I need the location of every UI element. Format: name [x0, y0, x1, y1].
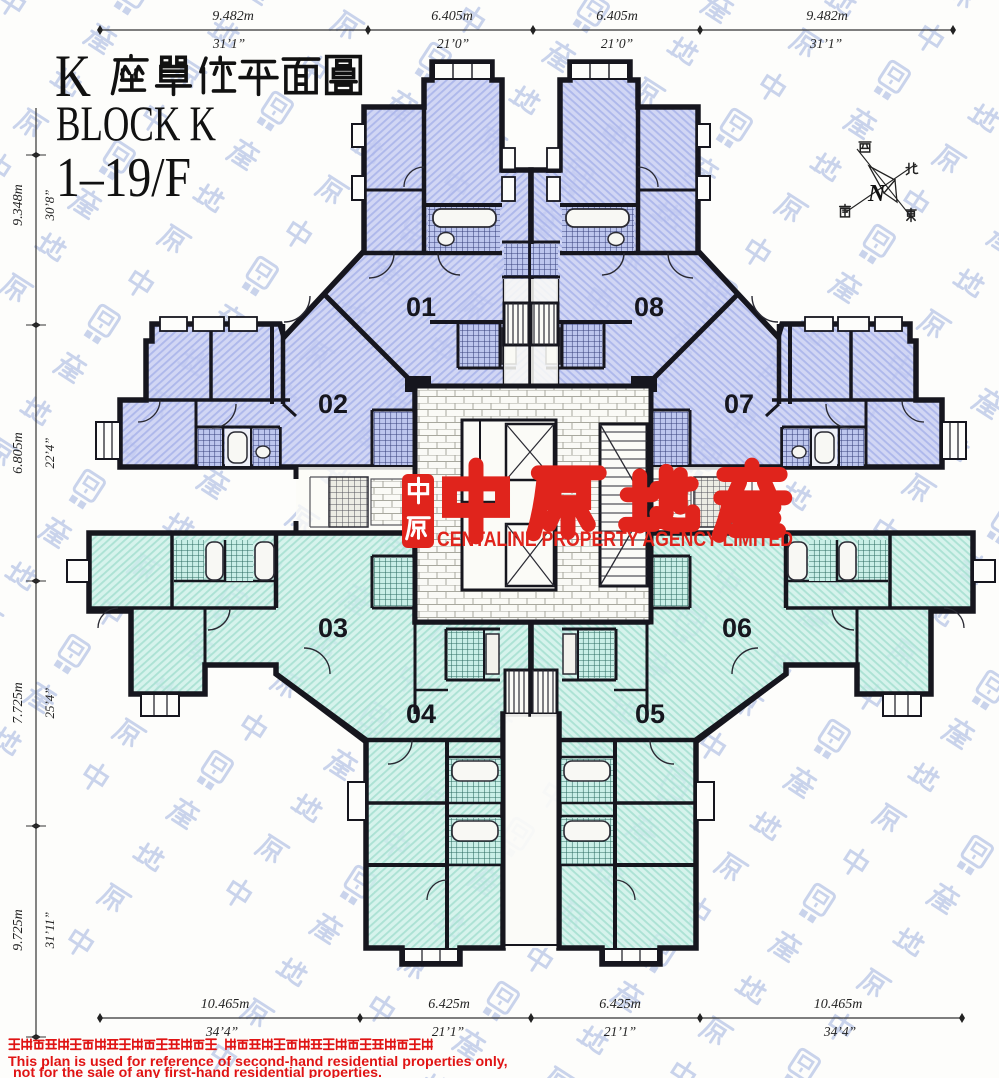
svg-text:10.465m: 10.465m	[814, 997, 863, 1012]
svg-text:21’1”: 21’1”	[432, 1024, 464, 1039]
svg-text:9.482m: 9.482m	[806, 9, 848, 24]
svg-text:03: 03	[318, 613, 348, 643]
svg-text:21’0”: 21’0”	[437, 36, 469, 51]
svg-text:34’4”: 34’4”	[205, 1024, 238, 1039]
svg-text:30’8”: 30’8”	[42, 189, 57, 221]
svg-text:02: 02	[318, 389, 348, 419]
svg-text:6.805m: 6.805m	[11, 432, 26, 474]
svg-text:31’11”: 31’11”	[42, 912, 57, 950]
svg-text:9.348m: 9.348m	[11, 184, 26, 226]
svg-text:6.405m: 6.405m	[431, 9, 473, 24]
svg-text:21’0”: 21’0”	[601, 36, 633, 51]
svg-text:25’4”: 25’4”	[42, 687, 57, 718]
svg-text:CENTALINE PROPERTY AGENCY LIMI: CENTALINE PROPERTY AGENCY LIMITED	[437, 528, 793, 551]
svg-text:not for the sale of any first-: not for the sale of any first-hand resid…	[13, 1065, 382, 1078]
svg-text:05: 05	[635, 699, 665, 729]
svg-text:7.725m: 7.725m	[11, 682, 26, 724]
svg-text:31’1”: 31’1”	[212, 36, 245, 51]
svg-text:21’1”: 21’1”	[604, 1024, 636, 1039]
svg-text:31’1”: 31’1”	[809, 36, 842, 51]
svg-text:04: 04	[406, 699, 436, 729]
svg-text:BLOCK K: BLOCK K	[56, 95, 216, 151]
svg-text:34’4”: 34’4”	[823, 1024, 856, 1039]
svg-text:6.425m: 6.425m	[428, 997, 470, 1012]
svg-text:1–19/F: 1–19/F	[56, 147, 191, 209]
svg-text:01: 01	[406, 292, 436, 322]
svg-text:6.425m: 6.425m	[599, 997, 641, 1012]
svg-text:N: N	[867, 181, 887, 207]
svg-text:07: 07	[724, 389, 754, 419]
svg-text:9.725m: 9.725m	[11, 909, 26, 951]
svg-text:9.482m: 9.482m	[212, 9, 254, 24]
svg-text:6.405m: 6.405m	[596, 9, 638, 24]
svg-text:22’4”: 22’4”	[42, 437, 57, 468]
svg-text:08: 08	[634, 292, 664, 322]
svg-text:10.465m: 10.465m	[201, 997, 250, 1012]
svg-text:06: 06	[722, 613, 752, 643]
